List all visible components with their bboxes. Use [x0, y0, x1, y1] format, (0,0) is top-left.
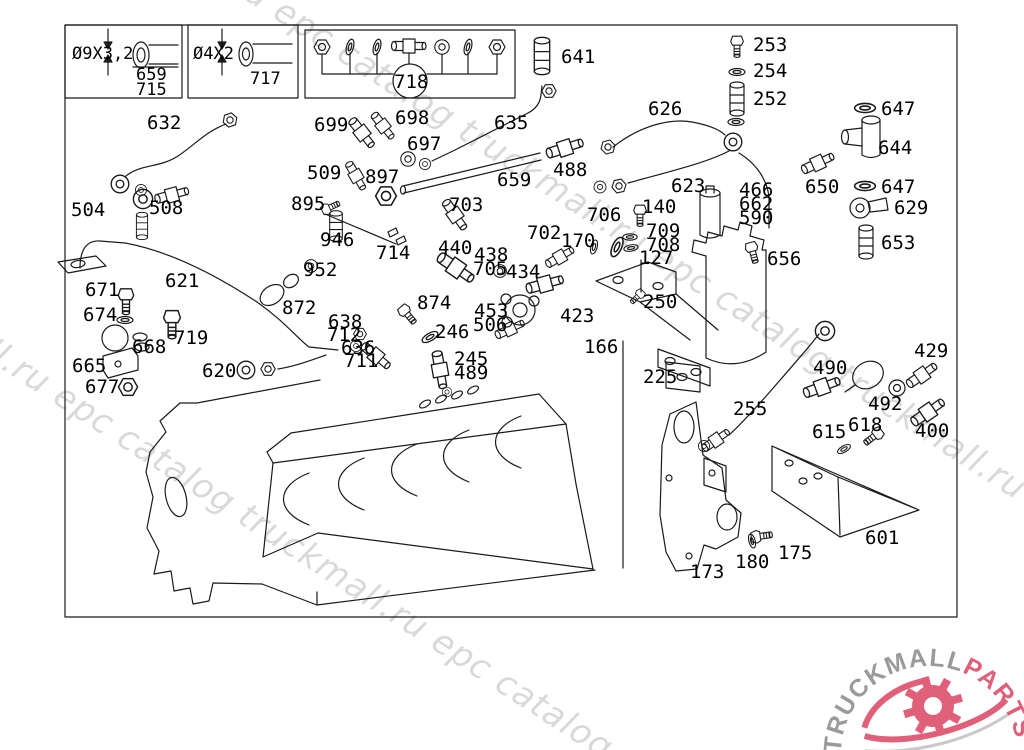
truckmall-logo: TRUCKMALLPARTS: [0, 0, 1024, 750]
catalog-diagram-page: truckmall.ru epc catalog truckmall.ru ep…: [0, 0, 1024, 750]
logo-text-pink: PARTS: [959, 652, 1024, 741]
